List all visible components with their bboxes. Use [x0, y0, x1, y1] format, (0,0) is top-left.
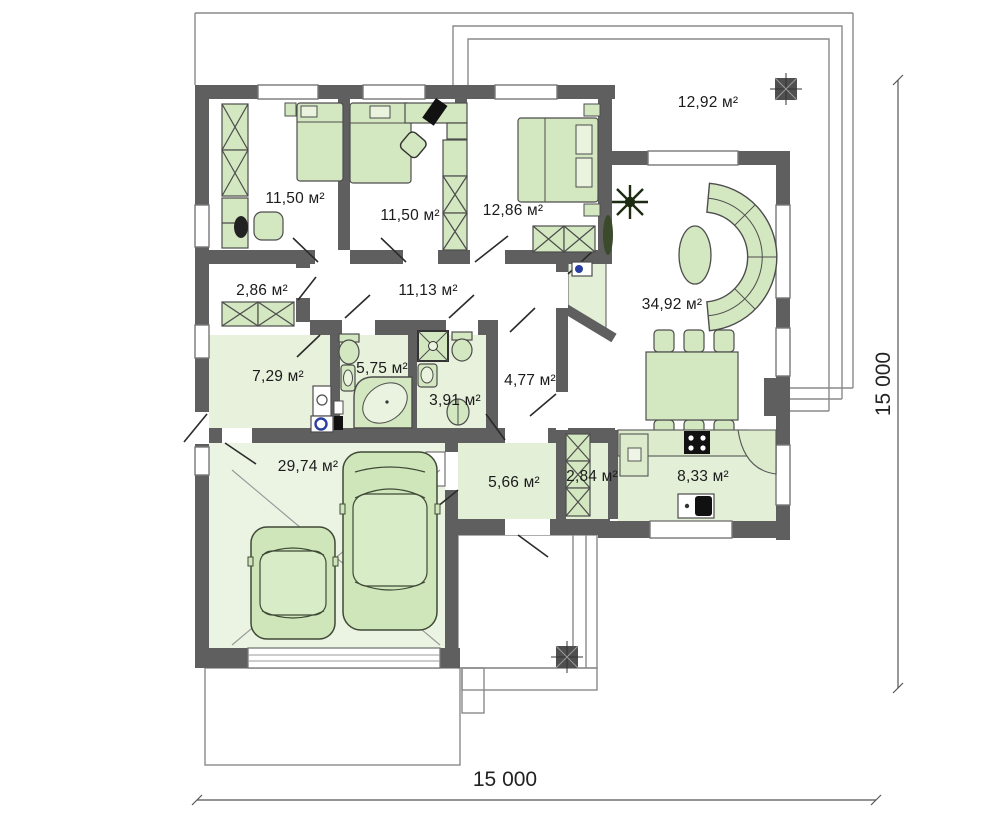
boiler-unit [572, 262, 592, 276]
coffee-table [679, 226, 711, 284]
room-label-utility: 7,29 м² [252, 368, 304, 386]
room-label-shower-room: 3,91 м² [429, 392, 481, 410]
garage-door [248, 648, 440, 668]
double-bed-bedroom-3 [518, 104, 600, 216]
room-label-kitchen: 8,33 м² [677, 468, 729, 486]
room-label-bathroom: 5,75 м² [356, 360, 408, 378]
dressing-table-bedroom-1 [234, 212, 283, 240]
terrace-column-icon [770, 73, 802, 105]
room-label-terrace: 12,92 м² [678, 94, 739, 112]
single-bed-bedroom-1 [285, 103, 343, 181]
room-label-pantry: 2,84 м² [566, 468, 618, 486]
car-small [248, 527, 338, 639]
wardrobe-closet [222, 302, 294, 326]
room-label-wardrobe: 2,86 м² [236, 282, 288, 300]
room-label-entry: 5,66 м² [488, 474, 540, 492]
room-label-garage: 29,74 м² [278, 458, 339, 476]
room-label-bedroom-2: 11,50 м² [380, 207, 439, 225]
corner-bathtub [354, 374, 415, 431]
sink-bathroom [341, 365, 355, 391]
dining-set [646, 330, 738, 442]
room-label-bedroom-3: 12,86 м² [483, 202, 544, 220]
room-label-hall: 4,77 м² [504, 372, 556, 390]
room-label-living-room: 34,92 м² [642, 296, 703, 314]
curved-sofa [707, 183, 777, 330]
wardrobe-bedroom-2 [443, 140, 467, 250]
dimension-width-label: 15 000 [473, 768, 537, 792]
shower-stall [418, 331, 448, 361]
dimension-height-label: 15 000 [872, 352, 896, 416]
stove-icon [684, 431, 710, 454]
car-large [340, 452, 440, 630]
floor-plan-drawing [0, 0, 1000, 822]
room-label-bedroom-1: 11,50 м² [265, 190, 324, 208]
room-label-corridor: 11,13 м² [398, 282, 457, 300]
floor-plan: 11,50 м² 11,50 м² 12,86 м² 12,92 м² 2,86… [0, 0, 1000, 822]
toilet-shower-room [452, 332, 472, 361]
wardrobe-bedroom-3 [533, 226, 595, 252]
kitchen-sink-icon [678, 494, 714, 518]
